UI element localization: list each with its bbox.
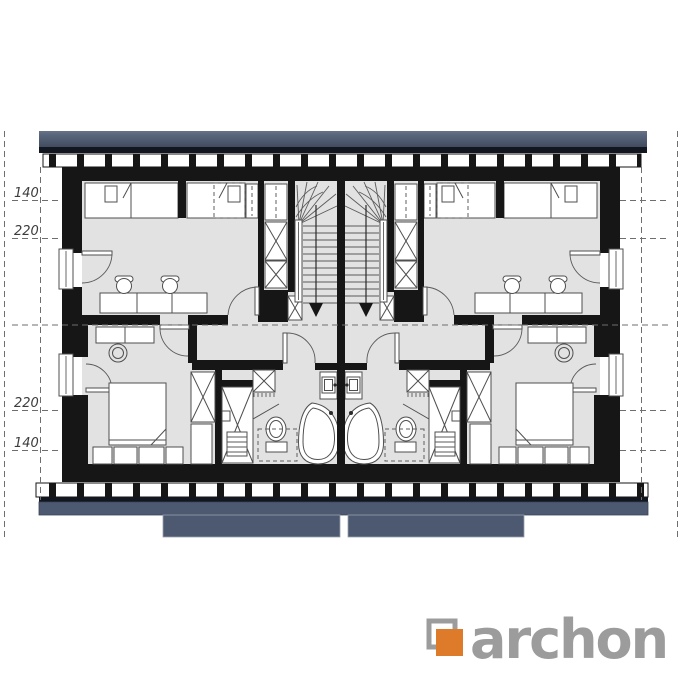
unit-left [59,181,339,464]
roof-band-top [39,131,647,153]
dormer-left [163,515,340,537]
dim-label-140-top: 140 [14,186,39,201]
rafter-strip-bottom [36,483,648,497]
dim-label-140-bottom: 140 [14,436,39,451]
rafter-strip-top [43,154,641,167]
dim-label-220-bottom: 220 [14,396,39,411]
logo-wordmark: archon [470,608,667,671]
floor-plan-canvas: 140 220 220 140 archon [0,0,682,675]
logo-orange-square-icon [436,629,463,656]
dim-label-220-top: 220 [14,224,39,239]
floor-plan-page: 140 220 220 140 archon [0,0,682,675]
unit-right [343,181,623,464]
dormer-right [348,515,524,537]
